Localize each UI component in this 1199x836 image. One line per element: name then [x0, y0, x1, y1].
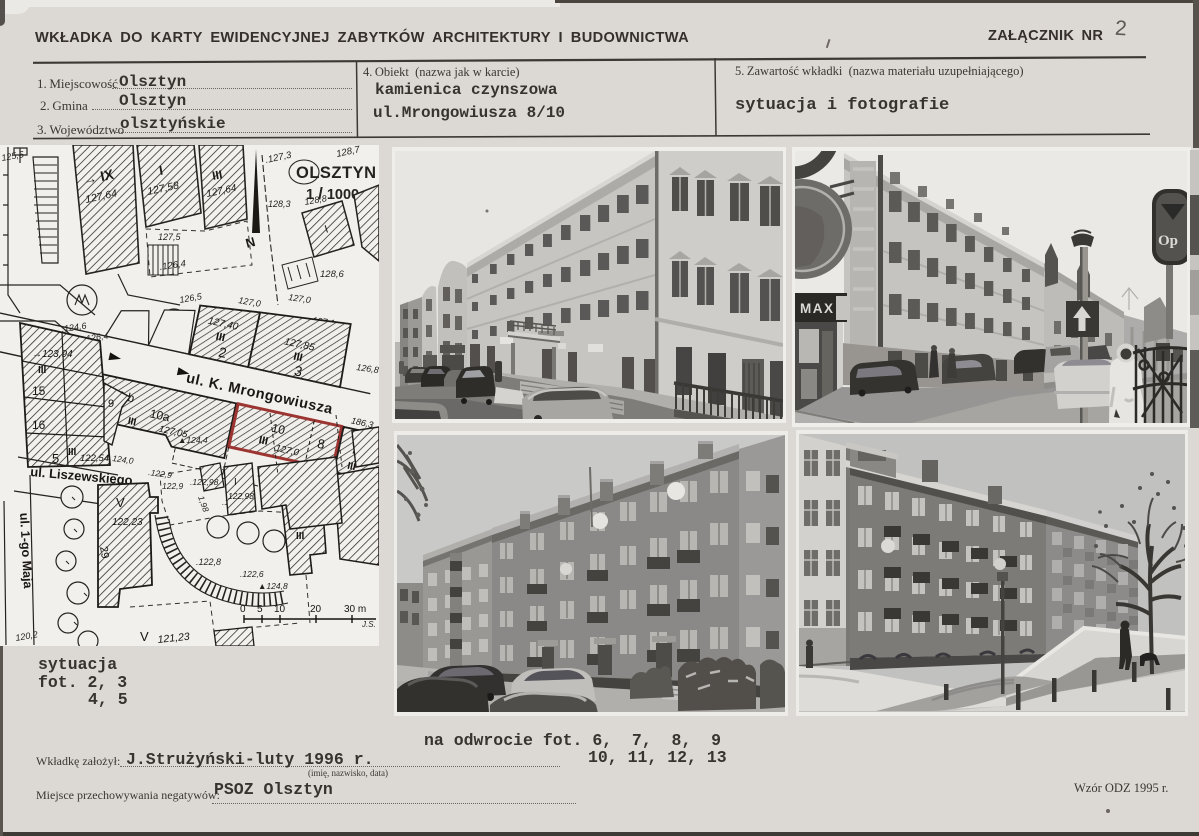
svg-text:III: III [38, 365, 47, 376]
svg-text:J.S.: J.S. [361, 620, 376, 629]
svg-text:30 m: 30 m [344, 604, 366, 615]
svg-text:20: 20 [310, 604, 322, 615]
svg-text:III: III [296, 531, 305, 542]
svg-text:127,5: 127,5 [158, 232, 182, 242]
svg-text:122,23: 122,23 [112, 517, 143, 528]
svg-text:→123,94: →123,94 [32, 349, 73, 360]
svg-text:V: V [116, 495, 125, 510]
svg-text:OLSZTYN: OLSZTYN [296, 164, 377, 182]
svg-text:.122,98: .122,98 [190, 477, 219, 487]
svg-text:▲124,8: ▲124,8 [258, 581, 288, 591]
svg-text:▲124,4: ▲124,4 [178, 435, 208, 445]
svg-text:.122,8: .122,8 [196, 557, 221, 567]
svg-text:MAX: MAX [800, 301, 835, 316]
svg-text:128,3: 128,3 [268, 199, 291, 209]
svg-text:0: 0 [240, 604, 246, 615]
svg-text:29: 29 [97, 545, 111, 559]
svg-text:5: 5 [257, 604, 263, 615]
svg-text:122,98: 122,98 [228, 491, 254, 501]
svg-text:.122,6: .122,6 [240, 569, 264, 579]
svg-text:9: 9 [108, 398, 114, 410]
svg-text:15: 15 [32, 384, 46, 398]
svg-text:122,9: 122,9 [162, 481, 184, 491]
svg-text:I: I [234, 477, 237, 488]
svg-text:16: 16 [32, 418, 46, 432]
svg-text:122,54: 122,54 [80, 453, 109, 464]
svg-text:III: III [68, 447, 77, 458]
svg-text:V: V [140, 629, 149, 644]
svg-text:128,6: 128,6 [320, 269, 344, 280]
svg-text:10: 10 [274, 604, 286, 615]
svg-text:Op: Op [1158, 233, 1178, 249]
